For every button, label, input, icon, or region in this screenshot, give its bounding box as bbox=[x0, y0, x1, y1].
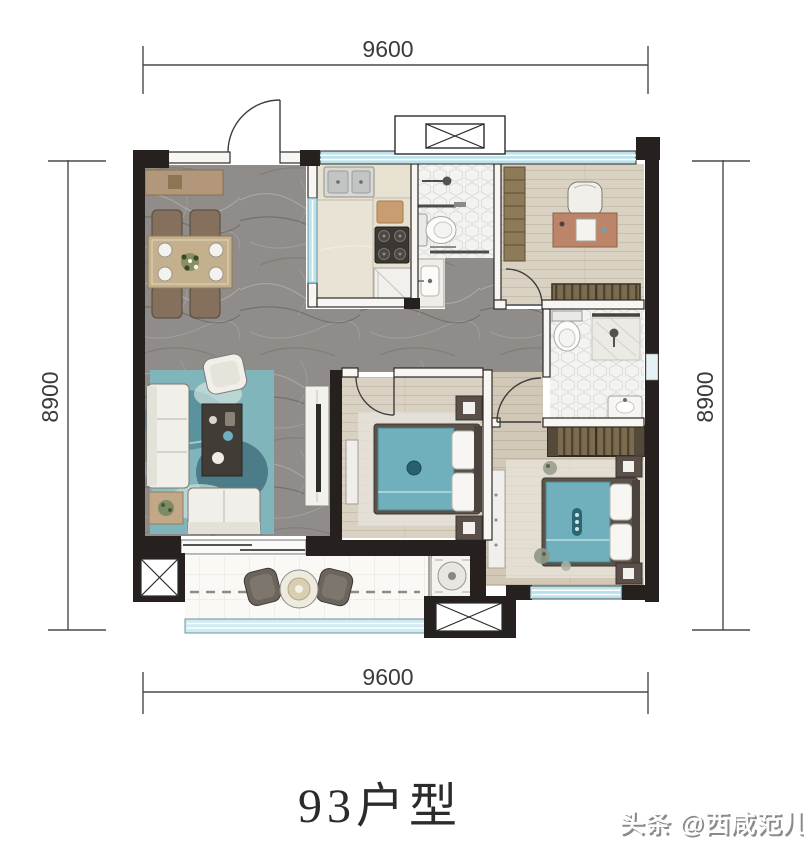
floor-bath1 bbox=[418, 164, 494, 258]
headboard bbox=[474, 426, 482, 512]
sliding-door-balcony bbox=[181, 540, 306, 554]
dimension-bottom-label: 9600 bbox=[362, 664, 413, 690]
side-table bbox=[149, 492, 183, 524]
vanity-basin bbox=[416, 259, 444, 307]
page-title: 93户型 bbox=[298, 780, 462, 833]
toilet bbox=[416, 214, 456, 246]
nightstand bbox=[616, 563, 642, 584]
master-bedroom bbox=[346, 396, 482, 540]
wall-master-bottom bbox=[338, 540, 474, 556]
pillow bbox=[610, 484, 632, 520]
glass-door-kitchen bbox=[308, 198, 317, 283]
wall-master-top-left bbox=[342, 368, 358, 377]
desk-chair bbox=[568, 182, 602, 216]
wall-kitchen-left-top bbox=[308, 164, 317, 198]
wall-kitchen-left-bottom bbox=[308, 283, 317, 307]
wall-top-left-corner bbox=[133, 150, 169, 168]
plate bbox=[209, 267, 223, 281]
pillow bbox=[452, 473, 476, 511]
wall-left bbox=[133, 166, 145, 556]
toilet bbox=[552, 311, 582, 351]
cutting-board bbox=[377, 201, 403, 223]
nightstand bbox=[616, 456, 642, 477]
stove bbox=[375, 227, 409, 263]
nightstand bbox=[456, 516, 482, 540]
kitchen-sink bbox=[324, 167, 374, 197]
shaft-left bbox=[133, 553, 185, 602]
washbasin bbox=[608, 396, 642, 419]
wall-bath2-bottom bbox=[543, 418, 644, 427]
wall-stub bbox=[404, 298, 420, 309]
sofa bbox=[147, 384, 189, 488]
nightstand bbox=[456, 396, 482, 420]
wardrobe bbox=[548, 426, 644, 456]
coffee-table bbox=[202, 404, 242, 476]
dining-chair bbox=[190, 286, 220, 318]
balcony-table bbox=[280, 570, 318, 608]
watermark: 头条 @西咸范儿 bbox=[619, 810, 804, 838]
plate bbox=[209, 243, 223, 257]
dimension-top-label: 9600 bbox=[362, 36, 413, 62]
bed-master bbox=[374, 424, 482, 514]
plate bbox=[158, 267, 172, 281]
wall-kitchen-bottom bbox=[317, 298, 414, 307]
wall-top-right-corner bbox=[636, 137, 660, 160]
dining-chair bbox=[152, 286, 182, 318]
wall-master-top-right bbox=[394, 368, 483, 377]
vent-shaft-top bbox=[395, 116, 505, 154]
sideboard bbox=[145, 170, 223, 195]
plate bbox=[158, 243, 172, 257]
wall-top-pier bbox=[300, 150, 320, 166]
wall-bath2-left bbox=[543, 309, 550, 377]
dimension-left-label: 8900 bbox=[37, 371, 63, 422]
window-bath2 bbox=[646, 354, 658, 380]
centerpiece-flowers bbox=[181, 253, 199, 271]
tv-console bbox=[305, 386, 329, 506]
loveseat bbox=[188, 488, 260, 534]
headboard bbox=[632, 480, 640, 564]
partition-stub bbox=[454, 202, 466, 207]
entry-door bbox=[228, 100, 280, 152]
armchair bbox=[202, 352, 249, 396]
ac-unit bbox=[431, 554, 473, 598]
dimension-top: 9600 bbox=[143, 36, 648, 94]
wall-entry-left bbox=[167, 152, 230, 163]
shower-head-icon bbox=[610, 329, 619, 338]
dimension-left: 8900 bbox=[37, 160, 106, 630]
wall-ac-side bbox=[470, 540, 486, 598]
bookshelf bbox=[504, 167, 525, 261]
window-balcony bbox=[185, 619, 428, 633]
shaft-bottom bbox=[424, 596, 516, 638]
wall-study-door-jamb bbox=[494, 300, 506, 309]
shower bbox=[592, 315, 640, 360]
wall-bedroom2-bottom-right bbox=[622, 585, 659, 600]
sideboard-decor bbox=[168, 175, 182, 189]
wall-entry-right bbox=[280, 152, 302, 163]
dresser bbox=[346, 440, 358, 504]
tv-screen bbox=[316, 404, 321, 492]
floor-plan-canvas: 9600 9600 8900 8900 93户型 头条 @西咸范儿 头条 @西咸… bbox=[0, 0, 804, 858]
pillow bbox=[610, 524, 632, 560]
dimension-right-label: 8900 bbox=[692, 371, 718, 422]
dimension-bottom: 9600 bbox=[143, 664, 648, 714]
wall-corridor-left bbox=[483, 370, 492, 540]
bed-secondary bbox=[542, 478, 640, 566]
wall-kitchen-bath bbox=[411, 164, 418, 307]
desk bbox=[553, 213, 617, 247]
wall-bath1-right bbox=[494, 164, 501, 303]
pillow bbox=[452, 431, 476, 469]
laptop bbox=[576, 219, 596, 241]
dimension-right: 8900 bbox=[692, 160, 750, 630]
floor-plan-page: 9600 9600 8900 8900 93户型 头条 @西咸范儿 头条 @西咸… bbox=[0, 0, 804, 858]
wall-living-master bbox=[330, 370, 342, 540]
wall-study-bottom bbox=[542, 300, 644, 309]
window-bedroom2 bbox=[530, 586, 622, 599]
